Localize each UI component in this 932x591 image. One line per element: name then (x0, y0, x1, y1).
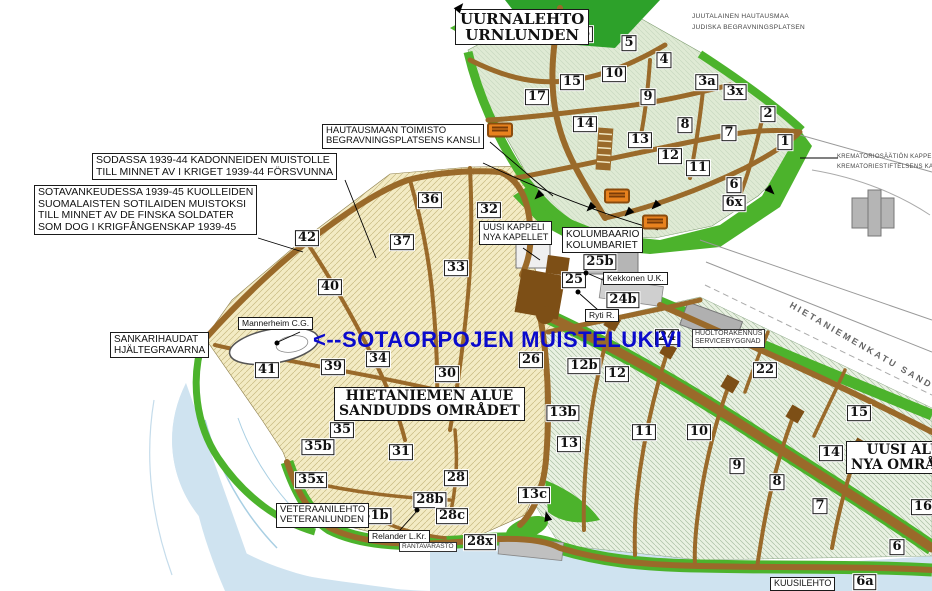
grave-marker-dot (275, 341, 280, 346)
plot-number-37: 37 (390, 234, 414, 250)
sankarihaudat-line-1: SANKARIHAUDAT (114, 334, 205, 345)
sodassa-muistolle-line-2: TILL MINNET AV I KRIGET 1939-44 FÖRSVUNN… (96, 167, 333, 179)
kolumbaario-line-1: KOLUMBAARIO (566, 229, 639, 240)
plot-number-13: 13 (557, 436, 581, 452)
plot-number-10: 10 (687, 424, 711, 440)
plot-number-8: 8 (769, 474, 784, 490)
plot-number-28b: 28b (413, 492, 446, 508)
krematorio-line-2: KREMATORIESTIFTELSENS KAPELL (837, 162, 932, 172)
plot-number-28: 28 (444, 470, 468, 486)
uusi-alue-label: UUSI ALUENYA OMRÅDET (846, 441, 932, 474)
plot-number-16: 16 (911, 499, 932, 515)
bus-stop-icon (487, 123, 513, 138)
plot-number-11: 11 (686, 160, 710, 176)
plot-number-3x: 3x (724, 84, 747, 100)
hietaniemen-alue-label: HIETANIEMEN ALUESANDUDDS OMRÅDET (334, 387, 525, 421)
hautausmaan-toimisto-line-2: BEGRAVNINGSPLATSENS KANSLI (326, 136, 480, 146)
hietaniemen-alue-line-1: HIETANIEMEN ALUE (339, 389, 520, 404)
map-base-art (0, 0, 932, 591)
sotavankeudessa-line-3: TILL MINNET AV DE FINSKA SOLDATER (38, 210, 253, 222)
hietaniemen-alue-line-2: SANDUDDS OMRÅDET (339, 404, 520, 419)
uusi-kappeli-line-2: NYA KAPELLET (483, 233, 548, 243)
rantavarasto-line-1: RANTAVARASTO (402, 543, 454, 551)
plot-number-22: 22 (753, 362, 777, 378)
plot-number-14: 14 (573, 116, 597, 132)
plot-number-42: 42 (295, 230, 319, 246)
veteraanilehto-line-2: VETERANLUNDEN (280, 515, 365, 525)
sodassa-muistolle-line-1: SODASSA 1939-44 KADONNEIDEN MUISTOLLE (96, 155, 333, 167)
sotaorpojen-muistelukivi-label: <--SOTAORPOJEN MUISTELUKIVI (313, 327, 682, 353)
uusi-alue-line-1: UUSI ALUE (851, 443, 932, 458)
uusi-alue-line-2: NYA OMRÅDET (851, 458, 932, 473)
plot-number-2: 2 (760, 106, 775, 122)
plot-number-32: 32 (477, 202, 501, 218)
ryti-label: Ryti R. (585, 309, 619, 322)
plot-number-10: 10 (602, 66, 626, 82)
sankarihaudat-label: SANKARIHAUDATHJÄLTEGRAVARNA (110, 332, 209, 358)
grave-marker-dot (584, 271, 589, 276)
sotavankeudessa-line-4: SOM DOG I KRIGFÅNGENSKAP 1939-45 (38, 222, 253, 234)
plot-number-36: 36 (418, 192, 442, 208)
kuusilehto-line-1: KUUSILEHTO (774, 579, 831, 589)
huoltorakennus-line-2: SERVICEBYGGNAD (695, 338, 762, 346)
plot-number-28c: 28c (436, 508, 468, 524)
sankarihaudat-line-2: HJÄLTEGRAVARNA (114, 345, 205, 356)
plot-number-4: 4 (656, 52, 671, 68)
plot-number-28x: 28x (464, 534, 496, 550)
plot-number-17: 17 (525, 89, 549, 105)
plot-number-26: 26 (519, 352, 543, 368)
plot-number-14: 14 (819, 445, 843, 461)
uurnalehto-line-2: URNLUNDEN (460, 27, 584, 43)
sotavankeudessa-label: SOTAVANKEUDESSA 1939-45 KUOLLEIDENSUOMAL… (34, 185, 257, 235)
kolumbaario-line-2: KOLUMBARIET (566, 240, 639, 251)
kekkonen-line-1: Kekkonen U.K. (607, 274, 664, 283)
juutalainen-hautausmaa-label: JUUTALAINEN HAUTAUSMAAJUDISKA BEGRAVNING… (692, 11, 805, 33)
plot-number-13c: 13c (518, 487, 550, 503)
kekkonen-label: Kekkonen U.K. (603, 272, 668, 285)
plot-number-11: 11 (632, 424, 656, 440)
grave-marker-dot (415, 508, 420, 513)
plot-number-6: 6 (726, 177, 741, 193)
plot-number-35: 35 (330, 422, 354, 438)
plot-number-6: 6 (889, 539, 904, 555)
plot-number-31: 31 (389, 444, 413, 460)
krematorio-line-1: KREMATORIOSÄÄTIÖN KAPPELI (837, 152, 932, 162)
uurnalehto-line-1: UURNALEHTO (460, 11, 584, 27)
plot-number-13: 13 (628, 132, 652, 148)
plot-number-9: 9 (640, 89, 655, 105)
uurnalehto-label: UURNALEHTOURNLUNDEN (455, 9, 589, 45)
juutalainen-hautausmaa-line-1: JUUTALAINEN HAUTAUSMAA (692, 11, 805, 22)
huoltorakennus-line-1: HUOLTORAKENNUS (695, 330, 762, 338)
uusi-kappeli-label: UUSI KAPPELINYA KAPELLET (479, 221, 552, 245)
cemetery-map: 165410153a3x17921487131121166x3632423733… (0, 0, 932, 591)
plot-number-15: 15 (560, 74, 584, 90)
plot-number-7: 7 (721, 125, 736, 141)
hautausmaan-toimisto-label: HAUTAUSMAAN TOIMISTOBEGRAVNINGSPLATSENS … (322, 124, 484, 149)
grave-marker-dot (576, 290, 581, 295)
mannerheim-line-1: Mannerheim C.G. (242, 319, 309, 328)
plot-number-12: 12 (658, 148, 682, 164)
sodassa-muistolle-label: SODASSA 1939-44 KADONNEIDEN MUISTOLLETIL… (92, 153, 337, 180)
plot-number-7: 7 (812, 498, 827, 514)
plot-number-9: 9 (729, 458, 744, 474)
rantavarasto-label: RANTAVARASTO (399, 542, 457, 552)
plot-number-25: 25 (562, 272, 586, 288)
plot-number-13b: 13b (546, 405, 579, 421)
plot-number-33: 33 (444, 260, 468, 276)
huoltorakennus-label: HUOLTORAKENNUSSERVICEBYGGNAD (692, 329, 765, 348)
plot-number-41: 41 (255, 362, 279, 378)
plot-number-6x: 6x (723, 195, 746, 211)
sotavankeudessa-line-1: SOTAVANKEUDESSA 1939-45 KUOLLEIDEN (38, 187, 253, 199)
ryti-line-1: Ryti R. (589, 311, 615, 320)
bus-stop-icon (642, 215, 668, 230)
juutalainen-hautausmaa-line-2: JUDISKA BEGRAVNINGSPLATSEN (692, 22, 805, 33)
plot-number-6a: 6a (853, 574, 876, 590)
plot-number-34: 34 (366, 351, 390, 367)
sotaorpojen-muistelukivi-line-1: <--SOTAORPOJEN MUISTELUKIVI (313, 327, 682, 353)
kolumbaario-label: KOLUMBAARIOKOLUMBARIET (562, 227, 643, 253)
plot-number-35x: 35x (295, 472, 327, 488)
kuusilehto-label: KUUSILEHTO (770, 577, 835, 591)
plot-number-12b: 12b (567, 358, 600, 374)
plot-number-1: 1 (777, 134, 792, 150)
plot-number-24b: 24b (606, 292, 639, 308)
plot-number-25b: 25b (583, 254, 616, 270)
plot-number-30: 30 (435, 366, 459, 382)
plot-number-8: 8 (677, 117, 692, 133)
plot-number-39: 39 (321, 359, 345, 375)
mannerheim-label: Mannerheim C.G. (238, 317, 313, 330)
plot-number-40: 40 (318, 279, 342, 295)
plot-number-15: 15 (847, 405, 871, 421)
plot-number-12: 12 (605, 366, 629, 382)
relander-line-1: Relander L.Kr. (372, 532, 426, 541)
plot-number-35b: 35b (301, 439, 334, 455)
bus-stop-icon (604, 189, 630, 204)
plot-number-3a: 3a (695, 74, 718, 90)
veteraanilehto-label: VETERAANILEHTOVETERANLUNDEN (276, 503, 369, 528)
krematorio-label: KREMATORIOSÄÄTIÖN KAPPELIKREMATORIESTIFT… (837, 152, 932, 172)
plot-number-5: 5 (621, 35, 636, 51)
